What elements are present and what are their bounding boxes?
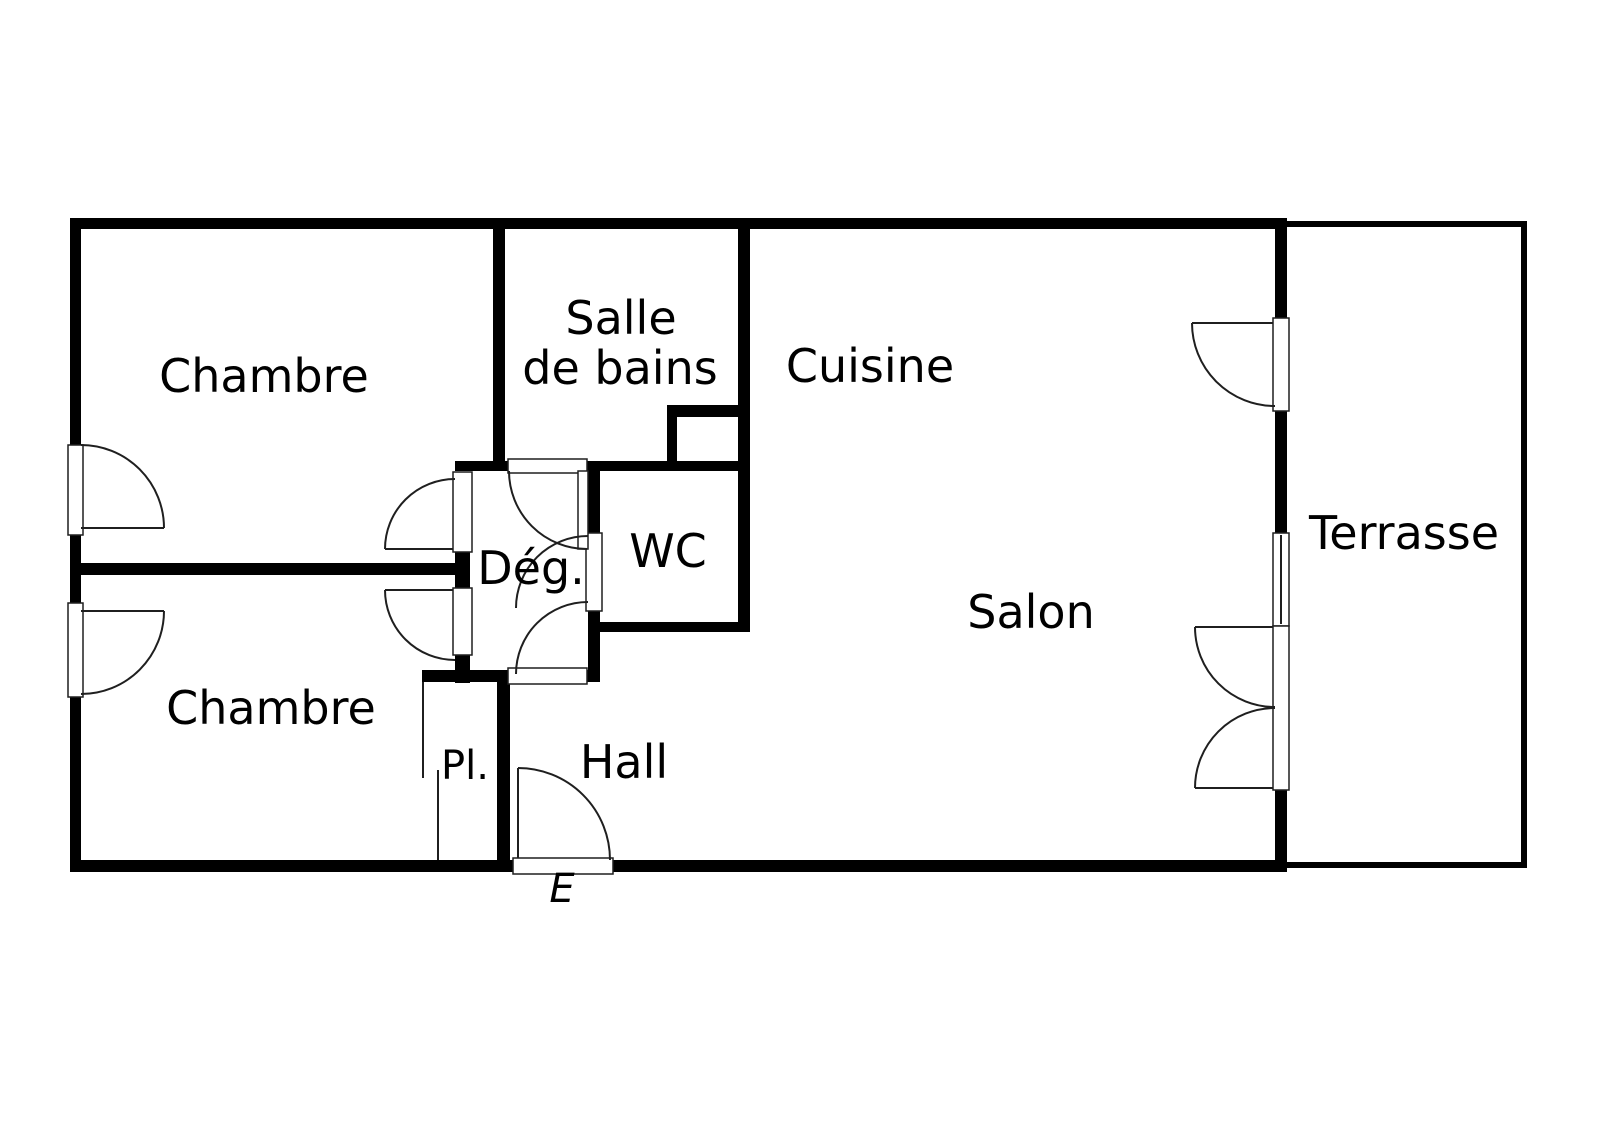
floor-plan-svg: ChambreSallede bainsCuisineWCDég.SalonCh… xyxy=(0,0,1600,1130)
wall-deg-right-1 xyxy=(588,461,600,533)
opening-chambre1-left xyxy=(68,445,83,535)
label-entrance-marker: E xyxy=(549,866,575,912)
wall-hall-left xyxy=(497,670,510,872)
wall-cuisine xyxy=(738,218,750,632)
label-room-salle-de-bains-line2: de bains xyxy=(522,341,717,395)
opening-terrasse-double-door xyxy=(1273,626,1289,790)
wall-left-1 xyxy=(70,218,81,445)
wall-duct-left xyxy=(667,405,677,471)
wall-left-3 xyxy=(70,697,81,872)
wall-deg-left-1 xyxy=(455,552,470,588)
wall-terrasse-top xyxy=(1287,221,1527,227)
wall-deg-bottom xyxy=(587,670,600,682)
opening-sdb-door xyxy=(508,459,587,473)
wall-placard-top xyxy=(422,670,508,682)
label-room-wc: WC xyxy=(629,524,707,578)
wall-mid-2 xyxy=(587,461,740,471)
wall-duct-top xyxy=(667,405,748,417)
opening-deg-chambre2 xyxy=(453,588,472,655)
opening-chambre2-left xyxy=(68,603,83,697)
wall-mid-1 xyxy=(455,461,508,471)
label-room-degagement: Dég. xyxy=(477,541,585,595)
label-room-salon: Salon xyxy=(967,585,1094,639)
wall-sdb-left xyxy=(493,218,505,471)
wall-wc-bottom xyxy=(592,622,750,632)
wall-right-3 xyxy=(1275,790,1287,862)
label-room-salle-de-bains-line1: Salle xyxy=(565,291,676,345)
wall-between-chambres xyxy=(70,563,470,575)
opening-terrasse-door xyxy=(1273,318,1289,411)
wall-bottom-2 xyxy=(613,860,1287,872)
opening-deg-chambre1 xyxy=(453,472,472,552)
label-room-cuisine: Cuisine xyxy=(786,339,954,393)
label-room-placard: Pl. xyxy=(441,743,489,789)
wall-bottom-1 xyxy=(70,860,513,872)
opening-deg-hall-door xyxy=(508,668,587,684)
label-room-hall: Hall xyxy=(580,735,668,789)
wall-right-2 xyxy=(1275,411,1287,533)
label-room-terrasse: Terrasse xyxy=(1308,506,1499,560)
wall-top xyxy=(70,218,1287,229)
wall-terrasse-right xyxy=(1521,221,1527,868)
floor-plan: ChambreSallede bainsCuisineWCDég.SalonCh… xyxy=(0,0,1600,1130)
wall-right-1 xyxy=(1275,218,1287,318)
wall-terrasse-bottom xyxy=(1287,862,1527,868)
label-room-chambre-1: Chambre xyxy=(159,349,369,403)
label-room-chambre-2: Chambre xyxy=(166,681,376,735)
